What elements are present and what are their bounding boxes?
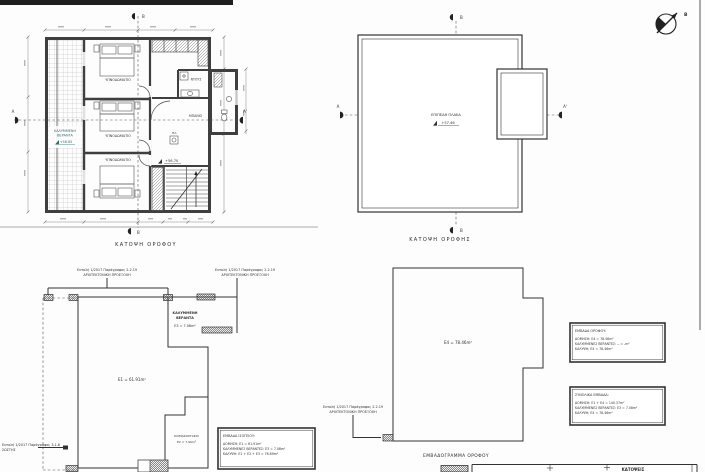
box-title: ΕΜΒΑΔΑ ΟΡΟΦΟΥ: <box>575 329 606 333</box>
nightstand-symbol <box>135 45 140 52</box>
roof-plan: ΕΠΙΠΕΔΗ ΠΛΑΚΑ +57.46 Α Α' Β Β ΚΑΤΟΨΗ ΟΡΟ… <box>337 14 567 243</box>
door-arc <box>139 140 150 151</box>
section-flag-icon <box>450 227 453 233</box>
annotation-code: Εντολή 1/2017 Παράγραφος 2.2.19 <box>77 268 137 272</box>
stair-direction-arrow <box>194 171 197 175</box>
roof-section-b-top: Β <box>460 15 463 20</box>
box-title: ΕΜΒΑΔΑ ΙΣΟΓΕΙΟΥ: <box>223 434 255 438</box>
bedroom-label: ΥΠΝΟΔΩΜΑΤΙΟ <box>105 78 131 82</box>
left-note: Εντολή 1/2017 Παράγραφος 3.1.8 ΣΩΣΤΗΣ <box>2 443 68 452</box>
section-flag-icon <box>132 13 135 19</box>
annotation-code: Εντολή 1/2017 Παράγραφος 2.2.19 <box>323 405 383 409</box>
shower-room: ΝΤΟΥΣ <box>180 72 201 97</box>
annotation-right-top: Εντολή 1/2017 Παράγραφος 2.2.19 ΑΡΧΙΤΕΚΤ… <box>215 268 275 333</box>
nightstand-symbol <box>94 45 99 52</box>
floor-level: +56.70 <box>158 159 181 164</box>
laundry-label: ΠΛ. <box>172 131 177 135</box>
level-text: +56.70 <box>165 159 179 163</box>
note-target-marker <box>63 446 68 450</box>
annotation-bottom: Εντολή 1/2017 Παράγραφος 2.2.19 ΑΡΧΙΤΕΚΤ… <box>323 405 383 438</box>
left-note-line1: Εντολή 1/2017 Παράγραφος 3.1.8 <box>2 443 60 447</box>
veranda-level: +56.85 <box>60 140 73 144</box>
box-title: ΣΥΝΟΛΙΚΑ ΕΜΒΑΔΑ: <box>575 393 609 397</box>
wardrobe-symbols <box>152 40 208 66</box>
slab-label: ΕΠΙΠΕΔΗ ΠΛΑΚΑ <box>431 113 461 117</box>
projection-boxes <box>44 294 232 472</box>
box-line1: ΔΟΜΗΣΗ: Ε1 = 61.91m² <box>223 442 262 446</box>
section-b-bottom: Β <box>137 230 140 235</box>
box-line2: ΚΑΛΥΜΜΕΝΕΣ ΒΕΡΑΝΤΕΣ: Ε3 = 7.08m² <box>223 447 286 451</box>
section-flag-icon <box>15 117 18 124</box>
roof-plan-caption: ΚΑΤΟΨΗ ΟΡΟΦΗΣ <box>409 237 471 243</box>
north-label: Β <box>684 12 688 18</box>
ground-main-area: Ε1 = 61.91m² <box>118 377 146 382</box>
box-line3: ΚΑΛΥΨΗ: Ε1 + Ε2 + Ε3 = 76.89m² <box>223 452 279 456</box>
stair-outline <box>165 397 208 468</box>
floor-main-area: Ε4 = 78.46m² <box>444 340 472 345</box>
projection-box <box>383 435 393 442</box>
totals-box: ΣΥΝΟΛΙΚΑ ΕΜΒΑΔΑ: ΔΟΜΗΣΗ: Ε1 + Ε4 = 140.3… <box>570 387 665 425</box>
bath-label: ΜΠΑΝΙΟ <box>189 114 203 118</box>
floor-areas-box: ΕΜΒΑΔΑ ΟΡΟΦΟΥ: ΔΟΜΗΣΗ: Ε4 = 78.46m² ΚΑΛΥ… <box>570 323 665 362</box>
nightstand-symbol <box>135 102 140 109</box>
roof-section-b-bottom: Β <box>460 228 463 233</box>
floor-diagram-caption: ΕΜΒΑΔΟΓΡΑΜΜΑ ΟΡΟΦΟΥ <box>423 453 489 459</box>
roof-section-a: Α <box>337 104 340 109</box>
floor-plan: ΚΑΛΥΜΜΕΝΗ ΒΕΡΑΝΤΑ +56.85 <box>12 13 248 248</box>
annotation-left-top: Εντολή 1/2017 Παράγραφος 2.2.19 ΑΡΧΙΤΕΚΤ… <box>48 268 168 295</box>
bedroom-3: ΥΠΝΟΔΩΜΑΤΙΟ <box>94 158 140 198</box>
staircase <box>152 167 208 211</box>
section-flag-icon <box>450 14 453 20</box>
bedroom-1: ΥΠΝΟΔΩΜΑΤΙΟ <box>94 44 140 82</box>
left-note-line2: ΣΩΣΤΗΣ <box>2 448 16 452</box>
floor-plan-caption: ΚΑΤΟΨΗ ΟΡΟΦΟΥ <box>115 242 177 248</box>
roof-section-a-prime: Α' <box>563 104 567 109</box>
center-marks <box>547 465 610 471</box>
section-flag-icon <box>340 112 343 119</box>
floor-area-diagram: Εντολή 1/2017 Παράγραφος 2.2.19 ΑΡΧΙΤΕΚΤ… <box>323 268 665 459</box>
door-arc <box>139 155 150 166</box>
door-arc <box>139 86 150 97</box>
box-line1: ΔΟΜΗΣΗ: Ε4 = 78.46m² <box>575 337 614 341</box>
stair-label: ΚΛΙΜΑΚΟΣΤΑΣΙΟ <box>174 434 199 438</box>
section-a-prime-right: Α' <box>243 109 247 114</box>
veranda-label-2: ΒΕΡΑΝΤΑ <box>57 134 73 138</box>
hall-door-arc <box>151 101 170 120</box>
section-a-left: Α <box>12 109 15 114</box>
laundry-nook: ΠΛ. <box>170 131 178 144</box>
basin-symbol <box>187 92 192 96</box>
veranda-area-label-2: ΒΕΡΑΝΤΑ <box>176 316 194 320</box>
north-arrow-icon: Β <box>656 12 688 34</box>
basin-symbol <box>226 96 231 101</box>
bedroom-label: ΥΠΝΟΔΩΜΑΤΙΟ <box>105 134 131 138</box>
next-sheet-title: ΚΑΤΟΨΕΙΣ <box>622 467 645 472</box>
roof-bump-outer <box>497 69 547 139</box>
section-flag-icon <box>128 228 131 234</box>
covered-veranda: ΚΑΛΥΜΜΕΝΗ ΒΕΡΑΝΤΑ +56.85 <box>48 39 85 211</box>
drawing-sheet: Β <box>0 0 705 472</box>
slab-level: +57.46 <box>441 121 455 125</box>
bedroom-2: ΥΠΝΟΔΩΜΑΤΙΟ <box>94 101 140 138</box>
veranda-area-label-1: ΚΑΛΥΜΜΕΝΗ <box>172 311 197 315</box>
annotation-label: ΑΡΧΙΤΕΚΤΟΝΙΚΗ ΠΡΟΕΞΟΧΗ <box>221 273 269 277</box>
nightstand-symbol <box>135 190 140 197</box>
ground-areas-box: ΕΜΒΑΔΑ ΙΣΟΓΕΙΟΥ: ΔΟΜΗΣΗ: Ε1 = 61.91m² ΚΑ… <box>218 428 315 469</box>
nightstand-symbol <box>94 190 99 197</box>
section-b-top: Β <box>142 14 145 19</box>
shower-label: ΝΤΟΥΣ <box>191 78 202 82</box>
floor-outline <box>393 268 543 441</box>
section-flag-icon <box>240 117 243 124</box>
level-marker-icon <box>158 159 162 164</box>
stair-area: Ε2 = 7.90m² <box>177 440 197 444</box>
cabinet-symbol <box>214 73 222 87</box>
bedroom-label: ΥΠΝΟΔΩΜΑΤΙΟ <box>105 158 131 162</box>
ground-area-diagram: Εντολή 1/2017 Παράγραφος 2.2.19 ΑΡΧΙΤΕΚΤ… <box>2 268 315 472</box>
box-line3: ΚΑΛΥΨΗ: Ε4 = 78.46m² <box>575 411 613 415</box>
stair-closet <box>152 168 163 211</box>
box-line3: ΚΑΛΥΨΗ: Ε4 = 78.46m² <box>575 347 613 351</box>
top-sheet-edge <box>0 0 233 5</box>
annotation-code: Εντολή 1/2017 Παράγραφος 2.2.19 <box>215 268 275 272</box>
veranda-label-1: ΚΑΛΥΜΜΕΝΗ <box>54 129 76 133</box>
veranda-area-value: Ε3 = 7.08m² <box>174 324 196 328</box>
box-line2: ΚΑΛΥΜΜΕΝΕΣ ΒΕΡΑΝΤΕΣ: Ε3 = 7.08m² <box>575 406 638 410</box>
annotation-label: ΑΡΧΙΤΕΚΤΟΝΙΚΗ ΠΡΟΕΞΟΧΗ <box>83 273 131 277</box>
box-line1: ΔΟΜΗΣΗ: Ε1 + Ε4 = 140.37m² <box>575 401 625 405</box>
architectural-drawing: Β <box>0 0 705 472</box>
annotation-label: ΑΡΧΙΤΕΚΤΟΝΙΚΗ ΠΡΟΕΞΟΧΗ <box>329 410 377 414</box>
nightstand-symbol <box>94 102 99 109</box>
section-flag-icon <box>559 112 562 119</box>
box-line2: ΚΑΛΥΜΜΕΝΕΣ ΒΕΡΑΝΤΕΣ: -- = -m² <box>575 342 630 346</box>
